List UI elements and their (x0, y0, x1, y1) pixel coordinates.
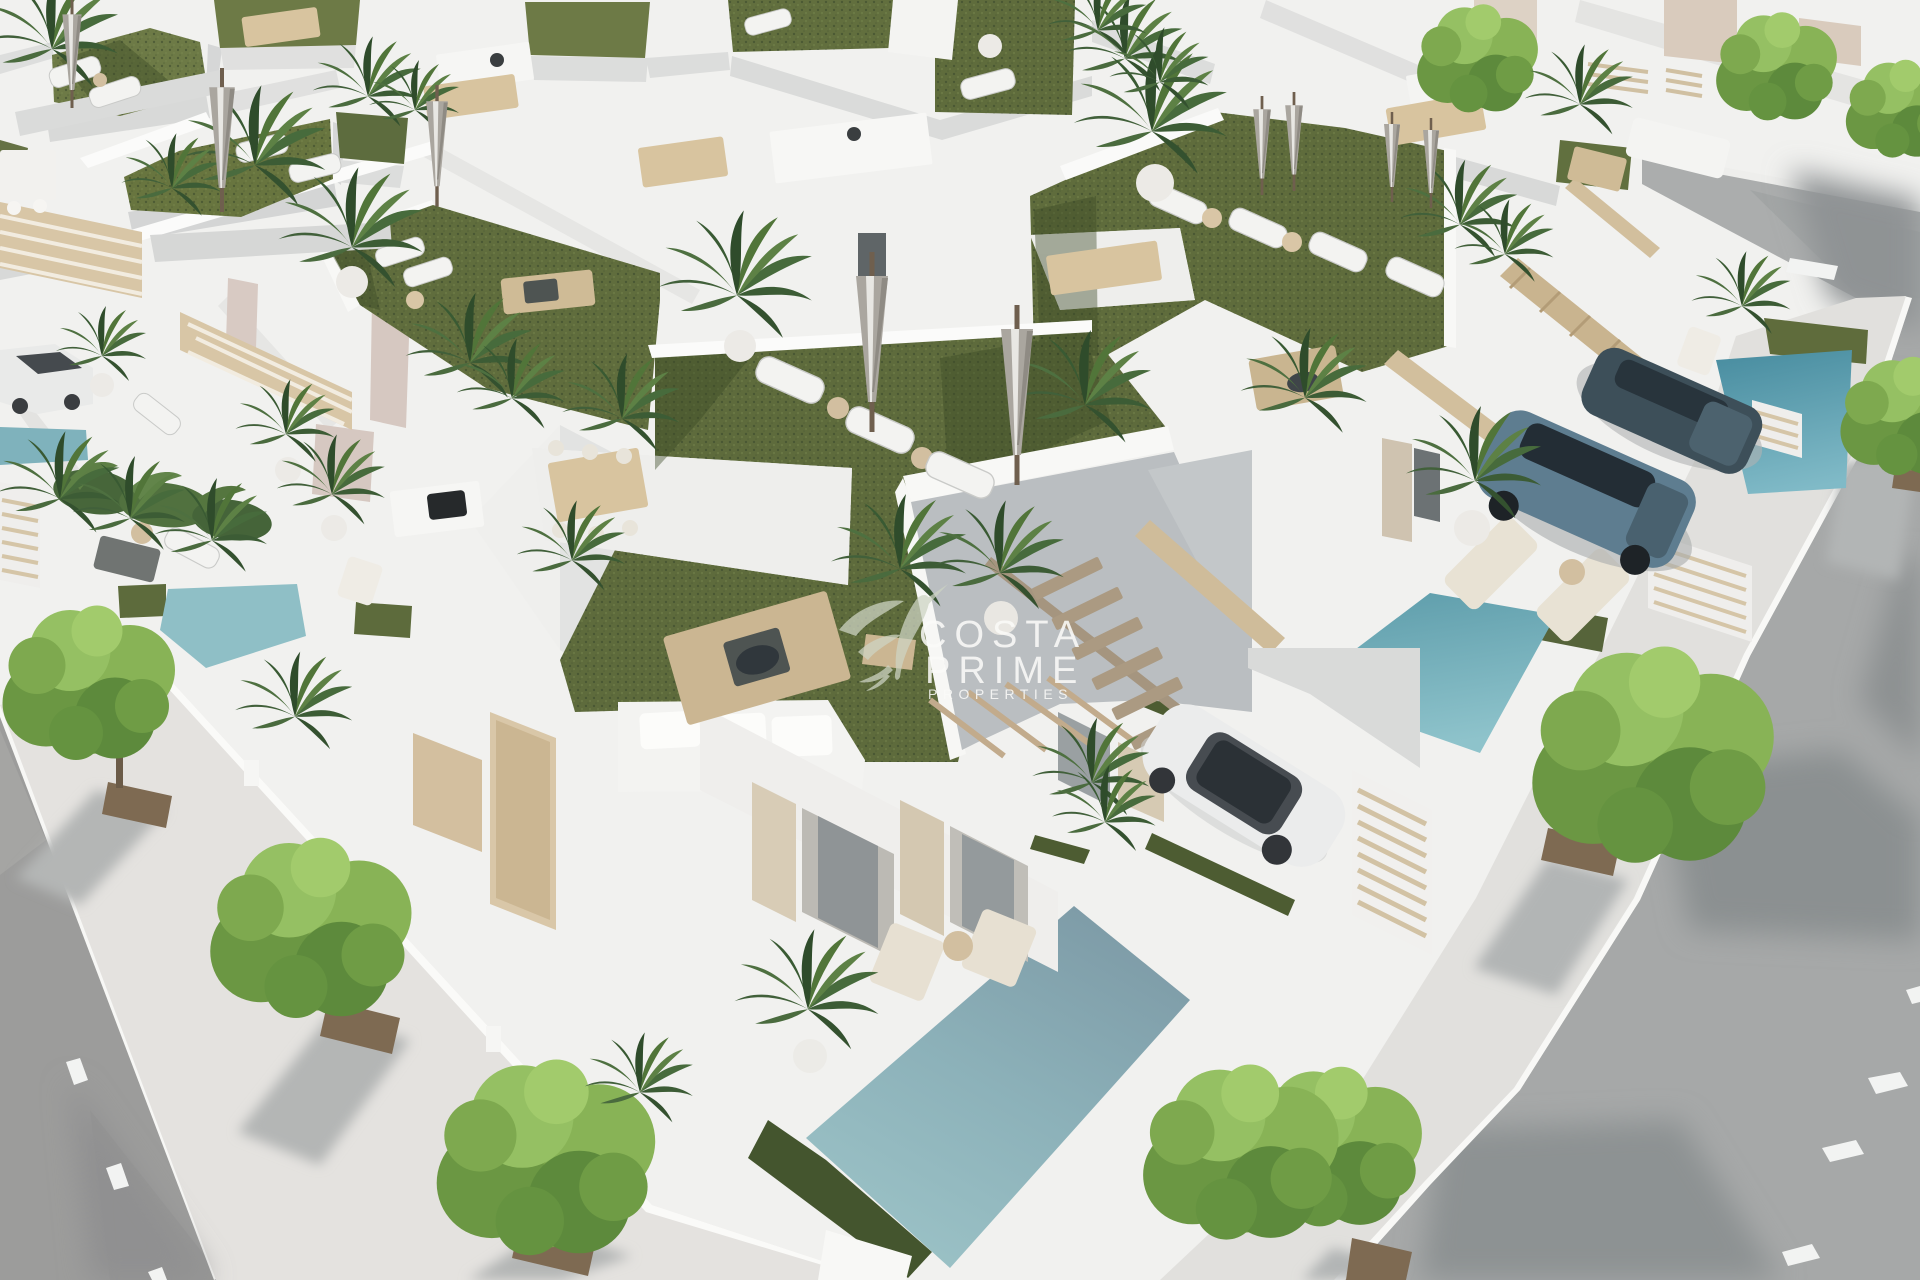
svg-text:PROPERTIES: PROPERTIES (928, 686, 1073, 702)
